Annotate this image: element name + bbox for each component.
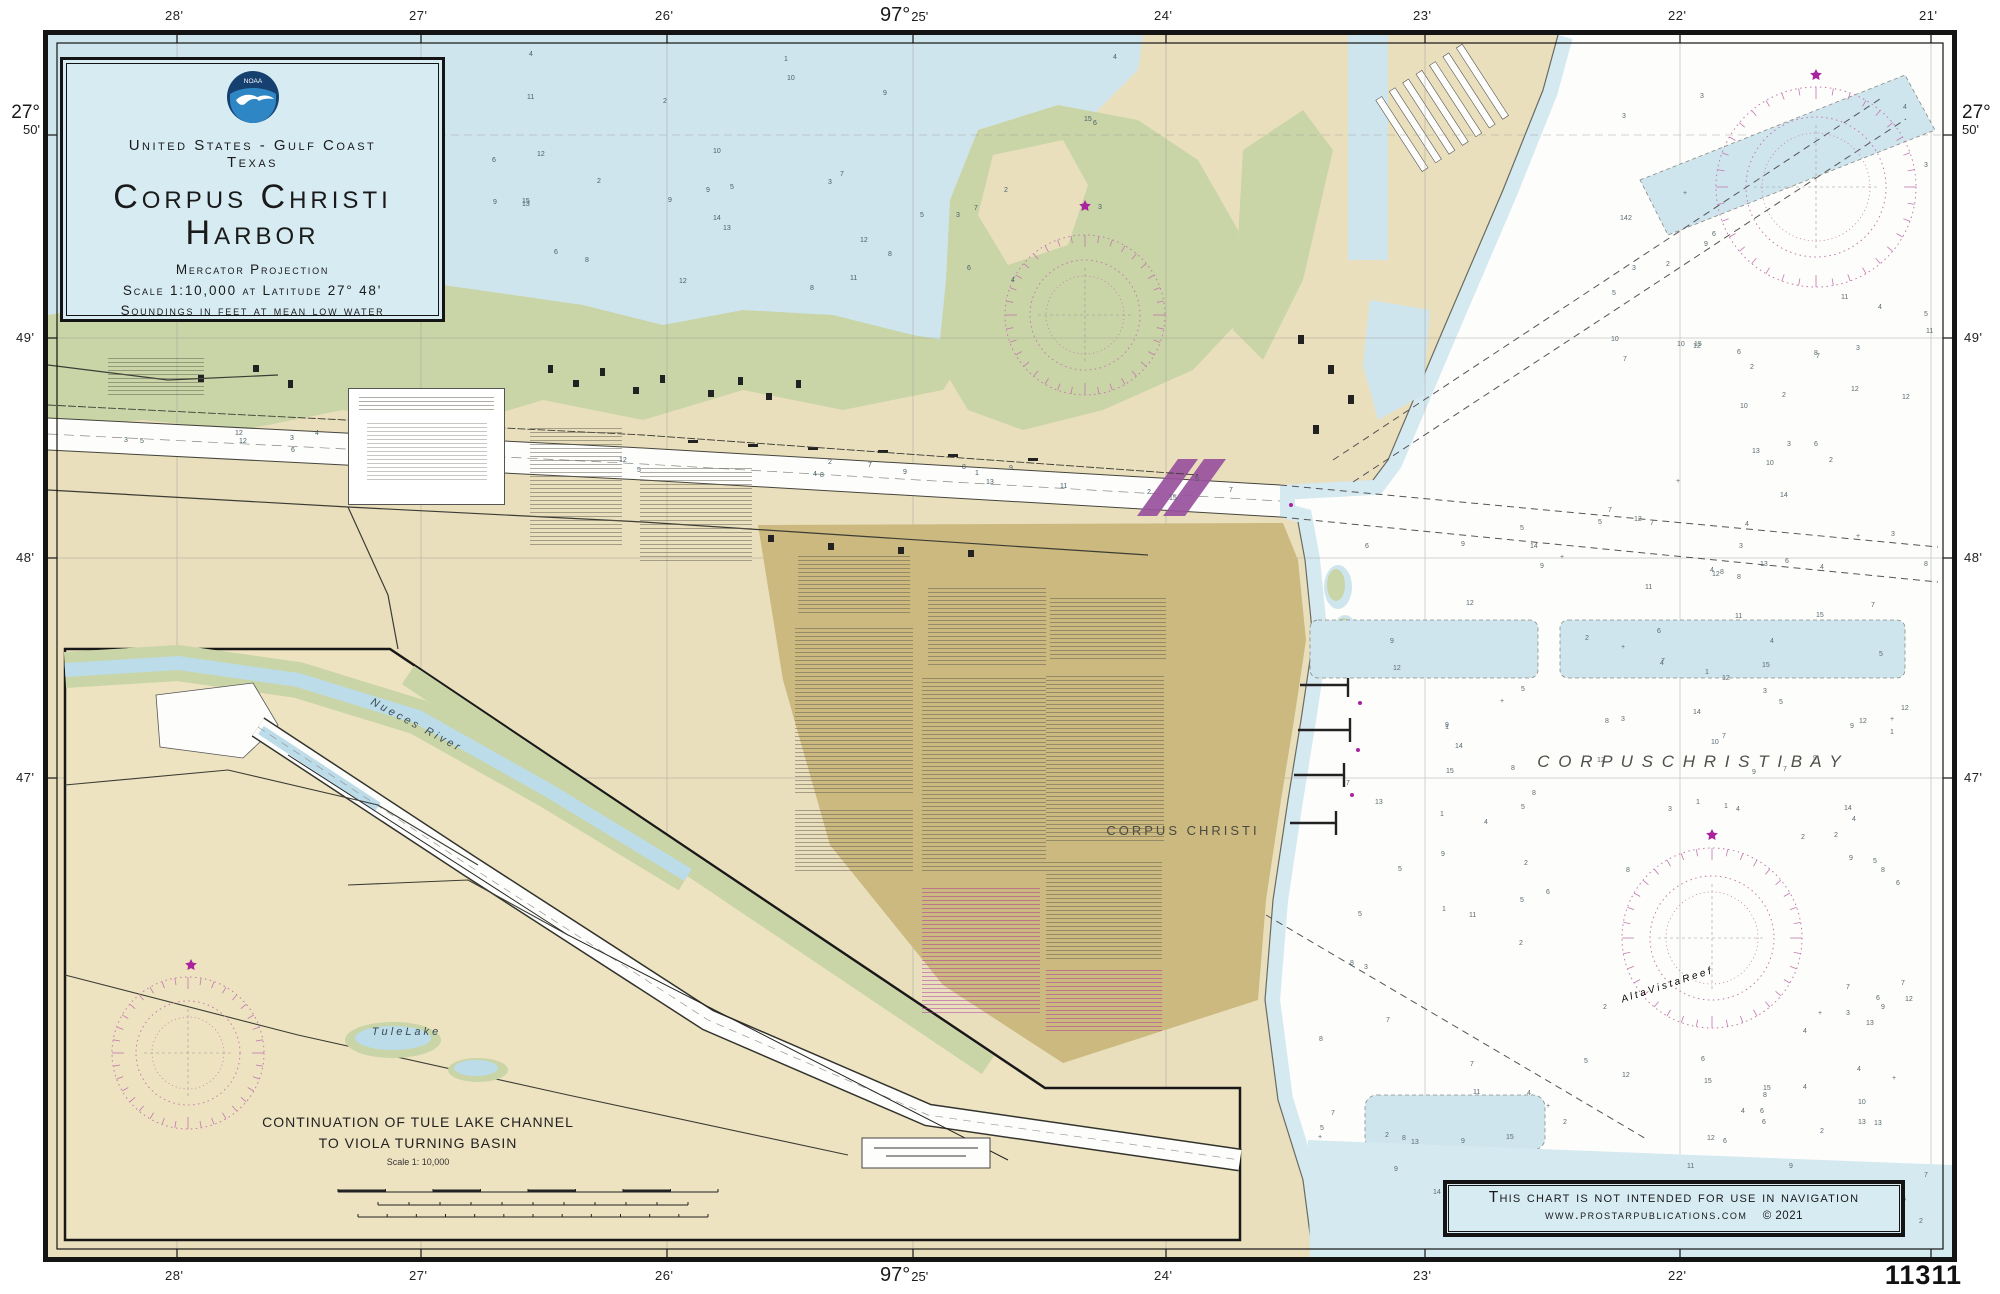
svg-text:7: 7 — [1846, 984, 1850, 991]
svg-text:4: 4 — [1741, 1108, 1745, 1115]
svg-text:10: 10 — [1711, 739, 1719, 746]
svg-text:3: 3 — [1739, 543, 1743, 550]
svg-text:13: 13 — [986, 479, 994, 486]
graticule-left-49: 49' — [16, 330, 34, 345]
svg-text:8: 8 — [1924, 561, 1928, 568]
note-block — [1046, 676, 1164, 844]
svg-text:12: 12 — [1707, 1135, 1715, 1142]
inset-title-line2: TO VIOLA TURNING BASIN — [319, 1135, 518, 1151]
graticule-bottom-28: 28' — [165, 1268, 183, 1283]
svg-text:8: 8 — [1737, 574, 1741, 581]
svg-text:+: + — [1676, 478, 1680, 485]
svg-text:4: 4 — [1820, 564, 1824, 571]
title-scale: Scale 1:10,000 at Latitude 27° 48' — [67, 281, 438, 301]
svg-text:5: 5 — [1358, 911, 1362, 918]
title-block: NOAA United States - Gulf Coast Texas Co… — [60, 57, 445, 322]
svg-text:4: 4 — [1857, 1066, 1861, 1073]
svg-text:9: 9 — [1789, 1163, 1793, 1170]
svg-text:2: 2 — [1563, 1119, 1567, 1126]
svg-text:11: 11 — [1060, 483, 1067, 490]
svg-text:3: 3 — [1621, 716, 1625, 723]
svg-text:+: + — [1546, 1103, 1550, 1110]
chart-title-line1: Corpus Christi — [67, 180, 438, 216]
note-block-magenta — [922, 888, 1040, 1016]
svg-text:5: 5 — [1398, 866, 1402, 873]
note-block — [922, 678, 1046, 874]
svg-text:10: 10 — [1858, 1099, 1866, 1106]
svg-text:11: 11 — [1469, 912, 1476, 919]
bay-label: C O R P U S C H R I S T I B A Y — [1537, 752, 1842, 771]
note-block — [795, 628, 913, 796]
svg-text:15: 15 — [1506, 1134, 1514, 1141]
svg-text:2: 2 — [1666, 261, 1670, 268]
source-diagram-box — [348, 388, 505, 505]
svg-text:14: 14 — [1530, 543, 1538, 550]
svg-text:+: + — [1856, 533, 1860, 540]
svg-text:6: 6 — [1723, 1138, 1727, 1145]
inset-title-line1: CONTINUATION OF TULE LAKE CHANNEL — [262, 1114, 574, 1130]
svg-text:4: 4 — [529, 51, 533, 58]
svg-text:7: 7 — [1924, 1172, 1928, 1179]
svg-text:8: 8 — [962, 464, 966, 471]
svg-text:8: 8 — [1881, 867, 1885, 874]
note-block — [1046, 862, 1162, 962]
svg-text:6: 6 — [1896, 880, 1900, 887]
graticule-left-47: 47' — [16, 770, 34, 785]
svg-text:9: 9 — [1445, 722, 1449, 729]
svg-text:1: 1 — [1696, 799, 1700, 806]
svg-text:2: 2 — [1829, 457, 1833, 464]
svg-text:9: 9 — [1461, 1138, 1465, 1145]
graticule-right-27-50: 27° 50' — [1962, 103, 2000, 137]
svg-text:4: 4 — [1745, 521, 1749, 528]
svg-text:+: + — [1890, 716, 1894, 723]
svg-text:9: 9 — [903, 469, 907, 476]
svg-text:4: 4 — [1527, 1090, 1531, 1097]
svg-text:6: 6 — [1785, 558, 1789, 565]
svg-text:6: 6 — [1762, 1119, 1766, 1126]
svg-text:3: 3 — [124, 437, 128, 444]
warning-line1: This chart is not intended for use in na… — [1449, 1189, 1899, 1207]
svg-text:12: 12 — [1722, 675, 1730, 682]
svg-text:3: 3 — [1763, 688, 1767, 695]
svg-text:4: 4 — [1903, 104, 1907, 111]
svg-text:3: 3 — [1856, 345, 1860, 352]
chart-page: CONTINUATION OF TULE LAKE CHANNEL TO VIO… — [0, 0, 2000, 1294]
svg-text:2: 2 — [1782, 392, 1786, 399]
svg-text:8: 8 — [1511, 765, 1515, 772]
svg-text:9: 9 — [1540, 563, 1544, 570]
svg-text:9: 9 — [1394, 1166, 1398, 1173]
inset-label-box — [862, 1138, 990, 1168]
svg-text:5: 5 — [920, 212, 924, 219]
svg-text:3: 3 — [1632, 265, 1636, 272]
svg-text:6: 6 — [291, 447, 295, 454]
svg-text:13: 13 — [1760, 561, 1768, 568]
svg-text:13: 13 — [1411, 1139, 1419, 1146]
svg-text:12: 12 — [1466, 600, 1474, 607]
svg-text:12: 12 — [235, 430, 243, 437]
svg-text:2: 2 — [1628, 215, 1632, 222]
svg-text:6: 6 — [967, 265, 971, 272]
title-state: Texas — [67, 154, 438, 171]
svg-text:13: 13 — [1375, 799, 1383, 806]
svg-text:5: 5 — [1520, 897, 1524, 904]
svg-text:6: 6 — [1814, 441, 1818, 448]
svg-text:15: 15 — [1762, 662, 1770, 669]
svg-text:8: 8 — [1626, 867, 1630, 874]
svg-text:5: 5 — [1879, 651, 1883, 658]
noaa-logo: NOAA — [226, 70, 280, 124]
svg-text:9: 9 — [1461, 541, 1465, 548]
graticule-bottom-23: 23' — [1413, 1268, 1431, 1283]
note-block — [928, 588, 1046, 666]
title-soundings: Soundings in feet at mean low water — [67, 301, 438, 321]
svg-text:9: 9 — [883, 90, 887, 97]
svg-text:3: 3 — [956, 212, 960, 219]
svg-text:14: 14 — [1844, 805, 1852, 812]
svg-text:9: 9 — [1881, 1004, 1885, 1011]
graticule-top-24: 24' — [1154, 8, 1172, 23]
svg-text:15: 15 — [522, 198, 530, 205]
svg-text:11: 11 — [1687, 1163, 1694, 1170]
svg-text:2: 2 — [1585, 635, 1589, 642]
svg-text:+: + — [1683, 190, 1687, 197]
title-projection: Mercator Projection — [67, 260, 438, 280]
graticule-top-21: 21' — [1919, 8, 1937, 23]
svg-text:14: 14 — [1693, 709, 1701, 716]
svg-text:8: 8 — [810, 285, 814, 292]
svg-text:12: 12 — [860, 237, 868, 244]
svg-text:3: 3 — [290, 435, 294, 442]
svg-text:9: 9 — [706, 187, 710, 194]
svg-text:5: 5 — [1521, 804, 1525, 811]
svg-text:12: 12 — [1851, 386, 1859, 393]
svg-text:10: 10 — [1677, 341, 1685, 348]
svg-text:11: 11 — [1926, 328, 1933, 335]
svg-text:+: + — [1818, 1010, 1822, 1017]
svg-text:9: 9 — [1850, 723, 1854, 730]
svg-text:6: 6 — [1737, 349, 1741, 356]
svg-text:15: 15 — [1446, 768, 1454, 775]
chart-title-line2: Harbor — [67, 216, 438, 252]
svg-text:10: 10 — [787, 75, 795, 82]
svg-text:14: 14 — [1620, 215, 1628, 222]
svg-text:7: 7 — [974, 205, 978, 212]
svg-text:2: 2 — [1519, 940, 1523, 947]
note-block — [640, 468, 752, 564]
svg-text:2: 2 — [1820, 1128, 1824, 1135]
svg-text:9: 9 — [668, 197, 672, 204]
note-block — [798, 556, 910, 614]
svg-text:+: + — [1560, 554, 1564, 561]
svg-text:8: 8 — [585, 257, 589, 264]
note-block — [1050, 598, 1166, 660]
svg-text:4: 4 — [1803, 1028, 1807, 1035]
graticule-top-27: 27' — [409, 8, 427, 23]
navigation-warning-box: This chart is not intended for use in na… — [1443, 1180, 1905, 1237]
svg-text:11: 11 — [527, 94, 534, 101]
svg-text:3: 3 — [1668, 806, 1672, 813]
graticule-top-22: 22' — [1668, 8, 1686, 23]
svg-text:2: 2 — [597, 178, 601, 185]
svg-text:15: 15 — [1704, 1078, 1712, 1085]
publisher-website: www.prostarpublications.com — [1545, 1207, 1747, 1222]
svg-text:4: 4 — [1113, 54, 1117, 61]
svg-text:6: 6 — [492, 157, 496, 164]
svg-text:8: 8 — [1319, 1036, 1323, 1043]
svg-text:7: 7 — [1331, 1110, 1335, 1117]
svg-text:11: 11 — [850, 275, 857, 282]
svg-text:8: 8 — [1350, 960, 1354, 967]
svg-text:14: 14 — [1780, 492, 1788, 499]
svg-text:4: 4 — [813, 471, 817, 478]
svg-text:3: 3 — [1924, 162, 1928, 169]
svg-text:9: 9 — [1441, 851, 1445, 858]
svg-text:8: 8 — [1814, 350, 1818, 357]
svg-text:3: 3 — [1622, 113, 1626, 120]
svg-text:12: 12 — [1901, 705, 1909, 712]
svg-text:+: + — [1318, 1134, 1322, 1141]
graticule-bottom-97-25: 97° 25' — [880, 1264, 928, 1287]
svg-text:4: 4 — [1878, 304, 1882, 311]
svg-text:3: 3 — [828, 179, 832, 186]
graticule-left-27-50: 27° 50' — [2, 103, 40, 137]
svg-text:11: 11 — [1473, 1089, 1480, 1096]
warning-line2: www.prostarpublications.com © 2021 — [1449, 1207, 1899, 1222]
svg-text:2: 2 — [663, 98, 667, 105]
svg-text:12: 12 — [1393, 665, 1401, 672]
svg-text:13: 13 — [1752, 448, 1760, 455]
tule-lake-label: T u l e L a k e — [372, 1026, 438, 1038]
svg-text:5: 5 — [1584, 1058, 1588, 1065]
graticule-top-23: 23' — [1413, 8, 1431, 23]
svg-text:3: 3 — [1787, 441, 1791, 448]
svg-text:7: 7 — [1470, 1061, 1474, 1068]
svg-text:12: 12 — [1634, 516, 1642, 523]
svg-text:15: 15 — [1169, 495, 1177, 502]
svg-text:4: 4 — [1852, 816, 1856, 823]
svg-text:5: 5 — [1320, 1125, 1324, 1132]
svg-text:6: 6 — [1760, 1108, 1764, 1115]
svg-text:1: 1 — [1724, 803, 1728, 810]
svg-text:12: 12 — [239, 438, 247, 445]
svg-text:6: 6 — [1876, 995, 1880, 1002]
svg-text:8: 8 — [888, 251, 892, 258]
svg-text:2: 2 — [1750, 364, 1754, 371]
industrial-canal — [1348, 35, 1388, 260]
svg-text:14: 14 — [713, 215, 721, 222]
svg-text:14: 14 — [1455, 743, 1463, 750]
svg-text:8: 8 — [1605, 718, 1609, 725]
svg-text:13: 13 — [1866, 1020, 1874, 1027]
svg-text:9: 9 — [493, 199, 497, 206]
svg-text:1: 1 — [1705, 669, 1709, 676]
svg-text:4: 4 — [1770, 638, 1774, 645]
graticule-right-48: 48' — [1964, 550, 1982, 565]
graticule-bottom-24: 24' — [1154, 1268, 1172, 1283]
svg-text:3: 3 — [1364, 964, 1368, 971]
svg-text:1: 1 — [1890, 729, 1894, 736]
svg-text:4: 4 — [1484, 819, 1488, 826]
svg-text:8: 8 — [1720, 569, 1724, 576]
svg-text:7: 7 — [1650, 520, 1654, 527]
graticule-top-26: 26' — [655, 8, 673, 23]
svg-text:8: 8 — [1402, 1135, 1406, 1142]
graticule-right-49: 49' — [1964, 330, 1982, 345]
svg-text:9: 9 — [1849, 855, 1853, 862]
svg-text:2: 2 — [1919, 1218, 1923, 1225]
svg-text:5: 5 — [1873, 858, 1877, 865]
graticule-right-47: 47' — [1964, 770, 1982, 785]
svg-text:7: 7 — [1623, 356, 1627, 363]
svg-text:10: 10 — [1611, 336, 1619, 343]
svg-text:9: 9 — [1390, 638, 1394, 645]
svg-text:10: 10 — [1766, 460, 1774, 467]
svg-text:10: 10 — [713, 148, 721, 155]
svg-text:4: 4 — [1736, 806, 1740, 813]
svg-text:2: 2 — [1801, 834, 1805, 841]
svg-text:1: 1 — [1442, 906, 1446, 913]
svg-text:15: 15 — [1816, 612, 1824, 619]
svg-text:7: 7 — [1229, 487, 1233, 494]
svg-text:3: 3 — [1846, 1010, 1850, 1017]
svg-text:2: 2 — [1524, 860, 1528, 867]
svg-text:4: 4 — [1011, 277, 1015, 284]
svg-text:4: 4 — [315, 430, 319, 437]
svg-text:7: 7 — [840, 171, 844, 178]
svg-text:15: 15 — [1084, 116, 1092, 123]
svg-text:6: 6 — [1546, 889, 1550, 896]
svg-text:5: 5 — [1612, 290, 1616, 297]
noaa-logo-text: NOAA — [243, 78, 262, 85]
svg-text:7: 7 — [1346, 780, 1350, 787]
graticule-top-97-25: 97° 25' — [880, 4, 928, 27]
svg-text:2: 2 — [1147, 489, 1151, 496]
svg-text:6: 6 — [1657, 628, 1661, 635]
svg-text:11: 11 — [1841, 294, 1848, 301]
copyright: © 2021 — [1763, 1210, 1803, 1222]
svg-text:4: 4 — [1803, 1084, 1807, 1091]
svg-text:5: 5 — [1924, 311, 1928, 318]
title-region: United States - Gulf Coast — [67, 137, 438, 154]
svg-text:15: 15 — [1694, 341, 1702, 348]
graticule-bottom-26: 26' — [655, 1268, 673, 1283]
svg-text:6: 6 — [1701, 1056, 1705, 1063]
svg-text:5: 5 — [1598, 519, 1602, 526]
svg-text:11: 11 — [1735, 613, 1742, 620]
svg-text:2: 2 — [1834, 832, 1838, 839]
svg-text:6: 6 — [1093, 120, 1097, 127]
svg-text:6: 6 — [1712, 231, 1716, 238]
svg-text:8: 8 — [820, 472, 824, 479]
svg-text:4: 4 — [1710, 567, 1714, 574]
svg-text:12: 12 — [1902, 394, 1910, 401]
svg-text:13: 13 — [1858, 1119, 1866, 1126]
svg-text:7: 7 — [1871, 602, 1875, 609]
svg-text:5: 5 — [1521, 686, 1525, 693]
inset-scale-label: Scale 1: 10,000 — [387, 1157, 450, 1167]
svg-text:5: 5 — [140, 438, 144, 445]
svg-text:12: 12 — [1859, 718, 1867, 725]
svg-text:2: 2 — [1385, 1132, 1389, 1139]
svg-text:+: + — [1500, 698, 1504, 705]
svg-text:8: 8 — [1763, 1092, 1767, 1099]
svg-text:13: 13 — [723, 225, 731, 232]
svg-text:9: 9 — [1704, 241, 1708, 248]
note-block — [530, 428, 622, 546]
svg-text:12: 12 — [1905, 996, 1913, 1003]
svg-text:12: 12 — [679, 278, 687, 285]
svg-text:6: 6 — [554, 249, 558, 256]
graticule-top-28: 28' — [165, 8, 183, 23]
graticule-bottom-27: 27' — [409, 1268, 427, 1283]
svg-text:10: 10 — [1740, 403, 1748, 410]
svg-text:13: 13 — [1874, 1120, 1882, 1127]
svg-text:14: 14 — [1433, 1189, 1441, 1196]
note-block-magenta — [1046, 970, 1162, 1032]
svg-text:15: 15 — [1763, 1085, 1771, 1092]
svg-text:5: 5 — [730, 184, 734, 191]
svg-text:5: 5 — [1195, 476, 1199, 483]
svg-text:1: 1 — [1440, 811, 1444, 818]
svg-text:7: 7 — [1901, 980, 1905, 987]
svg-text:5: 5 — [1779, 699, 1783, 706]
svg-text:+: + — [1892, 1075, 1896, 1082]
svg-text:3: 3 — [1700, 93, 1704, 100]
svg-text:2: 2 — [1004, 187, 1008, 194]
svg-text:7: 7 — [1722, 733, 1726, 740]
svg-text:6: 6 — [1365, 543, 1369, 550]
compass-rose-3 — [1622, 829, 1802, 1028]
svg-text:7: 7 — [1608, 507, 1612, 514]
svg-text:5: 5 — [1520, 525, 1524, 532]
svg-text:+: + — [1621, 644, 1625, 651]
note-block — [795, 810, 913, 872]
svg-text:1: 1 — [975, 470, 979, 477]
graticule-bottom-22: 22' — [1668, 1268, 1686, 1283]
svg-text:12: 12 — [1622, 1072, 1630, 1079]
svg-text:9: 9 — [1009, 465, 1013, 472]
svg-text:2: 2 — [1603, 1004, 1607, 1011]
svg-text:7: 7 — [1661, 658, 1665, 665]
svg-text:1: 1 — [784, 56, 788, 63]
svg-text:8: 8 — [1532, 790, 1536, 797]
svg-text:7: 7 — [868, 462, 872, 469]
reef-label: A l t a V i s t a R e e f — [1619, 966, 1713, 1006]
svg-text:3: 3 — [1098, 204, 1102, 211]
note-block — [108, 358, 204, 398]
svg-text:12: 12 — [537, 151, 545, 158]
svg-text:11: 11 — [1645, 584, 1652, 591]
svg-text:3: 3 — [1891, 531, 1895, 538]
graticule-left-48: 48' — [16, 550, 34, 565]
svg-text:2: 2 — [828, 459, 832, 466]
svg-text:7: 7 — [1386, 1017, 1390, 1024]
chart-number: 11311 — [1842, 1260, 1962, 1291]
